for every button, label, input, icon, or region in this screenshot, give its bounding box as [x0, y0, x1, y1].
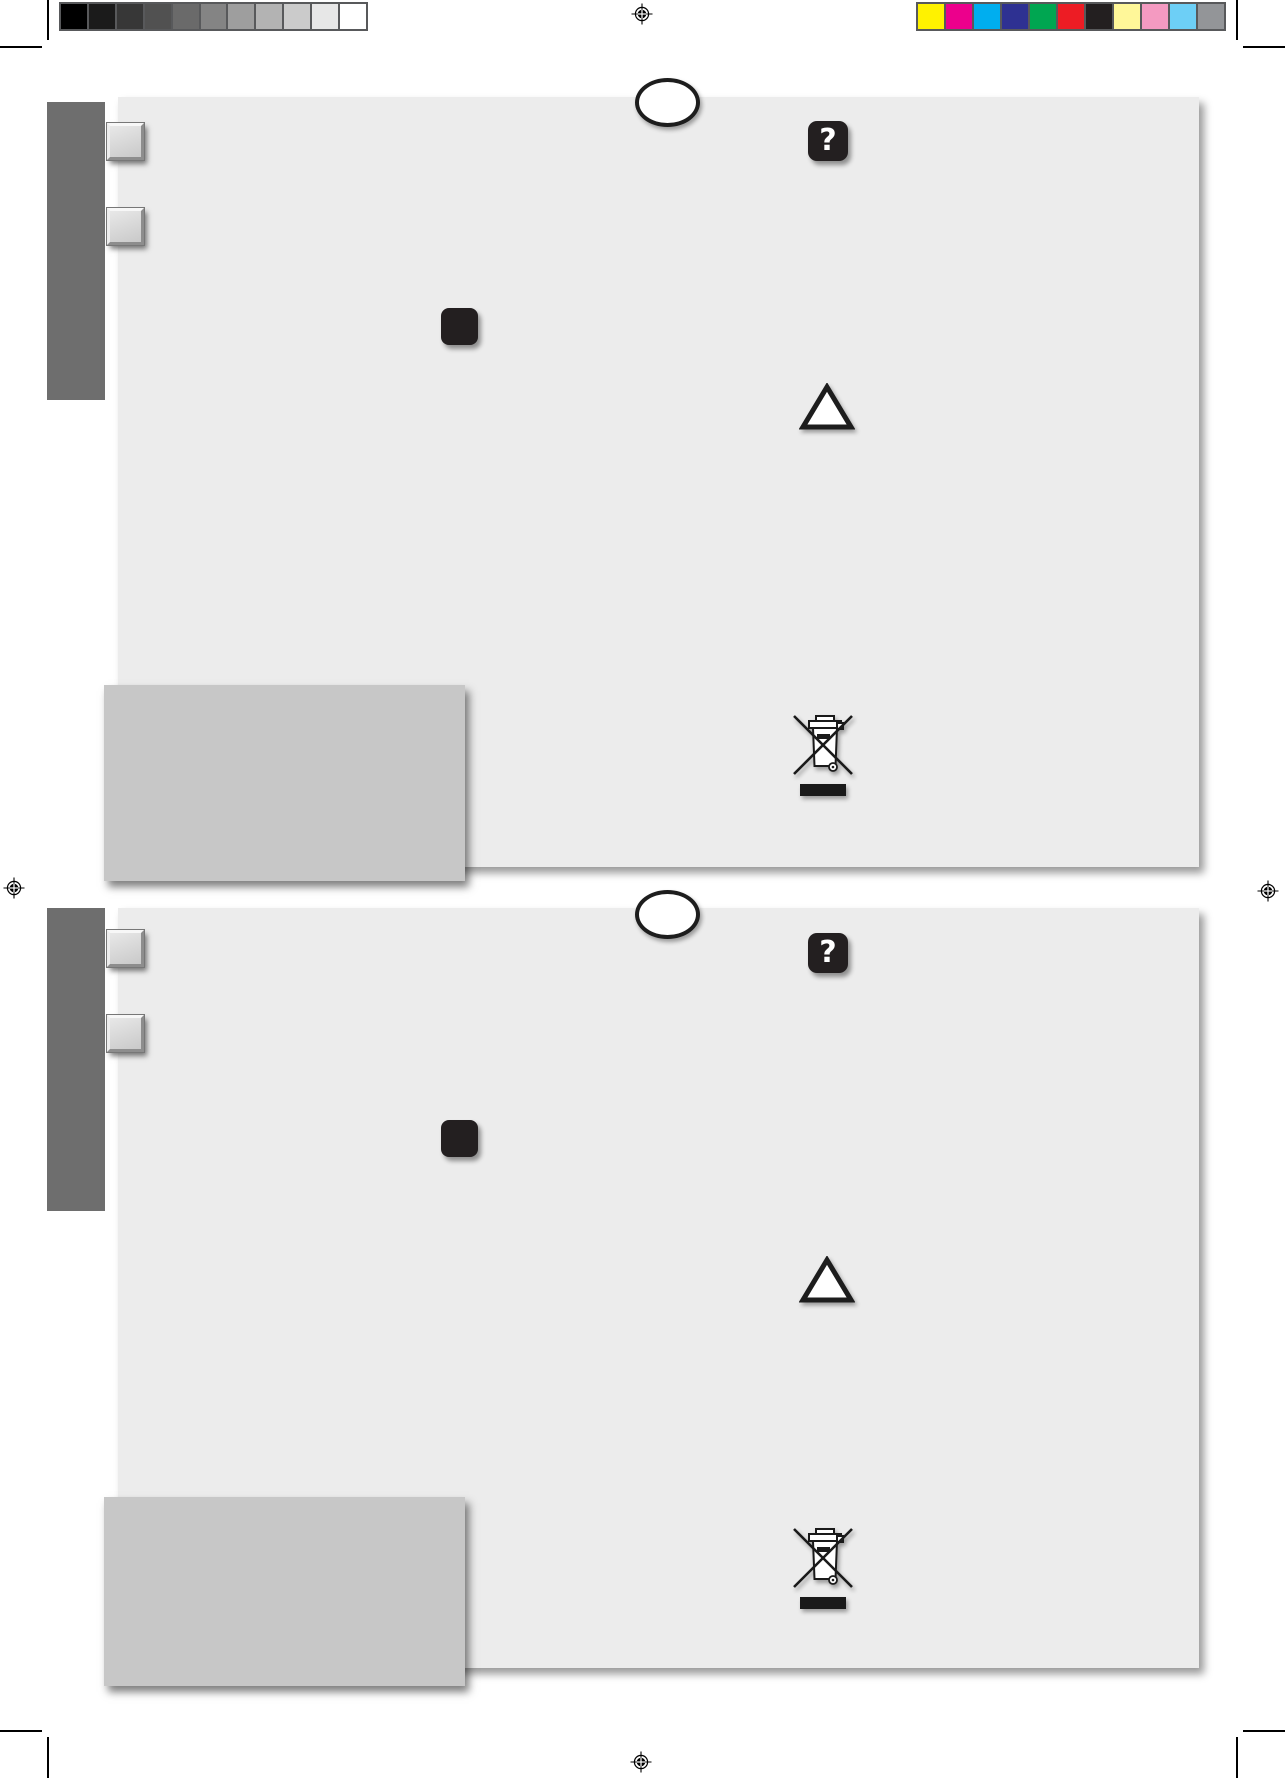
crop-mark-top-left-vertical [47, 0, 49, 40]
calibration-swatch [1142, 4, 1168, 29]
crop-mark-bottom-left-vertical [47, 1737, 49, 1778]
grayscale-calibration-bar [59, 2, 368, 31]
crop-mark-bottom-right-horizontal [1243, 1730, 1285, 1732]
page1-note-box [104, 685, 465, 881]
calibration-swatch [918, 4, 944, 29]
calibration-swatch [1198, 4, 1224, 29]
calibration-swatch [228, 4, 254, 29]
registration-mark-top-center-icon [631, 3, 653, 25]
crop-mark-bottom-right-vertical [1236, 1737, 1238, 1778]
calibration-swatch [1002, 4, 1028, 29]
calibration-swatch [1170, 4, 1196, 29]
crop-mark-top-left-horizontal [0, 46, 42, 48]
page1-dark-square-icon [441, 308, 478, 345]
page2-dark-square-icon [441, 1120, 478, 1157]
calibration-swatch [256, 4, 282, 29]
page1-spine-bar [47, 102, 105, 400]
page1-key-button-1 [107, 123, 144, 160]
calibration-swatch [312, 4, 338, 29]
color-calibration-bar [916, 2, 1226, 31]
calibration-swatch [946, 4, 972, 29]
page2-spine-bar [47, 908, 105, 1211]
calibration-swatch [1058, 4, 1084, 29]
page1-oval-placeholder-icon [635, 78, 700, 127]
calibration-swatch [1114, 4, 1140, 29]
calibration-swatch [284, 4, 310, 29]
page2-note-box [104, 1497, 465, 1686]
page2-help-icon: ? [808, 933, 848, 973]
crop-mark-bottom-left-horizontal [0, 1730, 42, 1732]
registration-mark-left-icon [3, 877, 25, 899]
crop-mark-top-right-horizontal [1243, 46, 1285, 48]
page2-key-button-1 [107, 930, 144, 967]
registration-mark-bottom-center-icon [630, 1751, 652, 1773]
registration-mark-right-icon [1257, 880, 1279, 902]
page1-weee-bin-icon [792, 713, 854, 798]
calibration-swatch [61, 4, 87, 29]
calibration-swatch [340, 4, 366, 29]
calibration-swatch [1030, 4, 1056, 29]
calibration-swatch [145, 4, 171, 29]
page2-oval-placeholder-icon [635, 890, 700, 939]
calibration-swatch [974, 4, 1000, 29]
calibration-swatch [117, 4, 143, 29]
calibration-swatch [1086, 4, 1112, 29]
page1-key-button-2 [107, 208, 144, 245]
page1-help-icon: ? [808, 121, 848, 161]
page2-warning-triangle-icon [799, 1256, 855, 1305]
calibration-swatch [89, 4, 115, 29]
calibration-swatch [201, 4, 227, 29]
page1-warning-triangle-icon [799, 383, 855, 432]
crop-mark-top-right-vertical [1236, 0, 1238, 40]
press-sheet-canvas: { "document": { "type": "print-press-pro… [0, 0, 1285, 1778]
page2-weee-bin-icon [792, 1526, 854, 1611]
page2-key-button-2 [107, 1015, 144, 1052]
calibration-swatch [173, 4, 199, 29]
